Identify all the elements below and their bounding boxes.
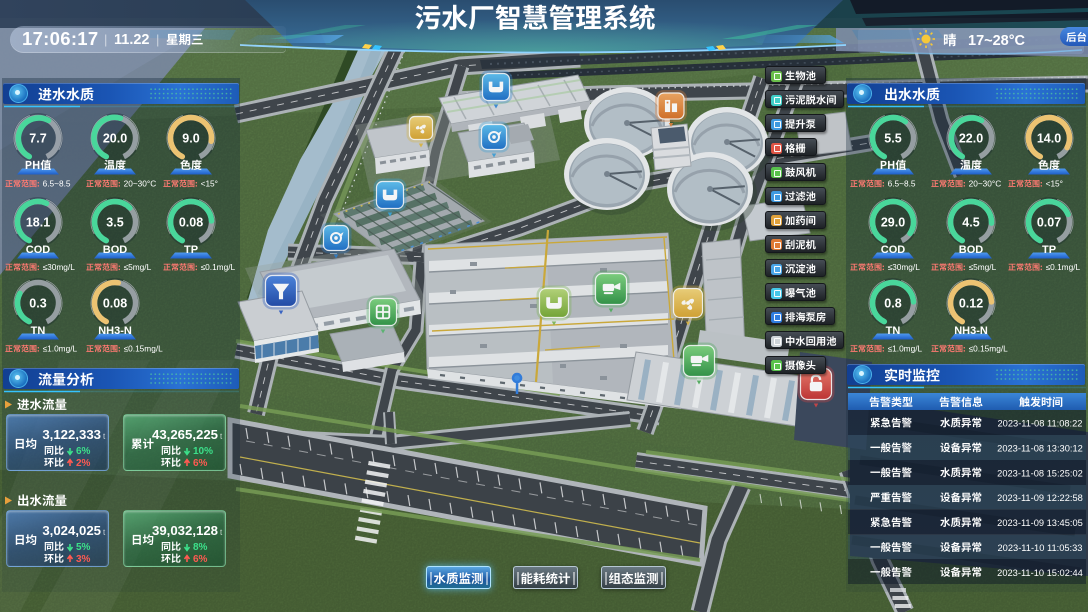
svg-text:29.0: 29.0	[881, 216, 905, 230]
svg-text:2023-11-09 12:22:58: 2023-11-09 12:22:58	[997, 493, 1083, 503]
svg-text:17~28°C: 17~28°C	[968, 33, 1026, 49]
svg-text:2023-11-08 13:30:12: 2023-11-08 13:30:12	[997, 443, 1083, 453]
svg-text:20.0: 20.0	[103, 132, 127, 146]
svg-text:0.08: 0.08	[179, 216, 203, 230]
svg-text:≤30mg/L: ≤30mg/L	[888, 262, 921, 272]
svg-text:t: t	[103, 528, 106, 537]
svg-text:2023-11-08 15:25:02: 2023-11-08 15:25:02	[997, 468, 1083, 478]
svg-text:0.8: 0.8	[884, 297, 901, 311]
svg-text:≤5mg/L: ≤5mg/L	[969, 262, 997, 272]
svg-text:6%: 6%	[193, 554, 208, 565]
svg-text:20~30°C: 20~30°C	[124, 179, 157, 189]
svg-text:0.08: 0.08	[103, 297, 127, 311]
svg-text:7.7: 7.7	[29, 132, 46, 146]
svg-text:3.5: 3.5	[106, 216, 123, 230]
svg-text:≤0.15mg/L: ≤0.15mg/L	[969, 344, 1009, 354]
svg-text:TP: TP	[184, 244, 198, 256]
svg-text:39,032,128: 39,032,128	[152, 523, 218, 538]
svg-text:<15°: <15°	[201, 179, 218, 189]
svg-text:5.5: 5.5	[884, 132, 901, 146]
svg-text:10%: 10%	[193, 446, 213, 457]
svg-text:9.0: 9.0	[182, 132, 199, 146]
svg-text:2023-11-10 15:02:44: 2023-11-10 15:02:44	[997, 568, 1083, 578]
svg-text:0.07: 0.07	[1037, 216, 1061, 230]
svg-text:6.5~8.5: 6.5~8.5	[888, 179, 916, 189]
svg-text:t: t	[220, 528, 223, 537]
svg-text:20~30°C: 20~30°C	[969, 179, 1002, 189]
svg-text:TP: TP	[1042, 244, 1056, 256]
svg-text:BOD: BOD	[959, 244, 984, 256]
svg-text:11.22: 11.22	[114, 32, 150, 48]
svg-text:0.12: 0.12	[959, 297, 983, 311]
svg-text:3,024,025: 3,024,025	[42, 523, 101, 538]
svg-text:2023-11-10 11:05:33: 2023-11-10 11:05:33	[998, 543, 1083, 553]
svg-text:6%: 6%	[76, 446, 91, 457]
svg-text:≤5mg/L: ≤5mg/L	[124, 262, 152, 272]
svg-text:4.5: 4.5	[962, 216, 979, 230]
svg-text:|: |	[104, 32, 107, 47]
svg-text:t: t	[103, 432, 106, 441]
svg-text:6.5~8.5: 6.5~8.5	[43, 179, 71, 189]
svg-text:≤0.1mg/L: ≤0.1mg/L	[201, 262, 236, 272]
svg-text:≤0.15mg/L: ≤0.15mg/L	[124, 344, 164, 354]
svg-text:0.3: 0.3	[29, 297, 46, 311]
svg-text:COD: COD	[881, 244, 906, 256]
svg-text:TN: TN	[886, 325, 901, 337]
svg-text:≤30mg/L: ≤30mg/L	[43, 262, 76, 272]
svg-text:2023-11-08 11:08:22: 2023-11-08 11:08:22	[998, 419, 1083, 429]
svg-text:COD: COD	[26, 244, 51, 256]
svg-text:≤1.0mg/L: ≤1.0mg/L	[43, 344, 78, 354]
svg-text:<15°: <15°	[1046, 179, 1063, 189]
svg-text:t: t	[220, 432, 223, 441]
svg-text:≤0.1mg/L: ≤0.1mg/L	[1046, 262, 1081, 272]
svg-text:TN: TN	[31, 325, 46, 337]
svg-text:NH3-N: NH3-N	[954, 325, 988, 337]
svg-text:≤1.0mg/L: ≤1.0mg/L	[888, 344, 923, 354]
svg-text:3%: 3%	[76, 554, 91, 565]
svg-text:6%: 6%	[193, 458, 208, 469]
svg-text:17:06:17: 17:06:17	[22, 28, 98, 49]
svg-text:2%: 2%	[76, 458, 91, 469]
svg-text:2023-11-09 13:45:05: 2023-11-09 13:45:05	[997, 518, 1083, 528]
svg-text:8%: 8%	[193, 542, 208, 553]
svg-text:5%: 5%	[76, 542, 91, 553]
svg-text:BOD: BOD	[103, 244, 128, 256]
svg-text:18.1: 18.1	[26, 216, 50, 230]
svg-text:43,265,225: 43,265,225	[152, 427, 218, 442]
svg-text:NH3-N: NH3-N	[98, 325, 132, 337]
svg-text:22.0: 22.0	[959, 132, 983, 146]
svg-text:14.0: 14.0	[1037, 132, 1061, 146]
svg-text:3,122,333: 3,122,333	[42, 427, 101, 442]
svg-text:|: |	[156, 32, 159, 47]
